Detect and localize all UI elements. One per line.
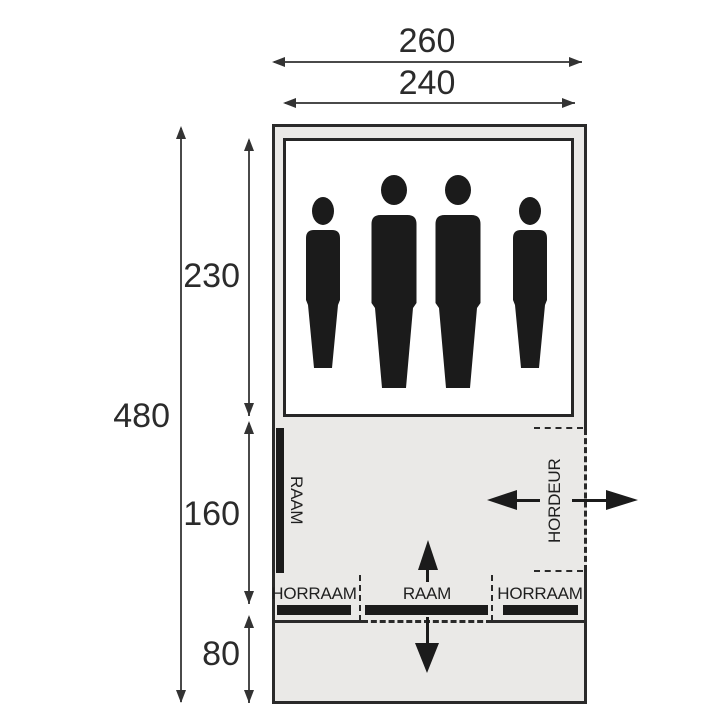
dimension-outer-width-value: 260 [352,21,502,61]
person-icon [371,175,417,388]
tent-floorplan-diagram: 260 240 480 230 160 80 RAAM HORDEUR [0,0,720,720]
canopy-divider-left [272,620,362,623]
tent-wall-top [272,124,587,127]
front-section-separator-left [359,575,361,621]
arrowhead-down-icon [244,591,254,604]
front-center-window-bar [365,605,488,615]
tent-wall-bottom [272,701,587,704]
door-arrow-inward-shaft [515,499,540,502]
arrowhead-right-icon [562,98,575,108]
arrowhead-down-icon [244,690,254,703]
front-door-arrow-inward-shaft [426,569,429,582]
door-arrow-inward-icon [487,490,517,510]
side-window-bar [276,428,284,573]
tent-wall-left [272,124,275,704]
front-right-window-label: HORRAAM [496,584,584,604]
front-door-arrow-outward-icon [415,643,439,673]
front-center-window-label: RAAM [383,584,471,604]
arrowhead-up-icon [176,126,186,139]
dimension-inner-width-value: 240 [352,63,502,103]
dimension-line-total-length [180,128,182,702]
arrowhead-left-icon [272,57,285,67]
arrowhead-down-icon [176,690,186,703]
tent-wall-right-upper [584,124,587,429]
dimension-canopy-length-value: 80 [168,634,240,674]
arrowhead-up-icon [244,615,254,628]
front-door-arrow-inward-icon [418,540,438,570]
dimension-line-living-length [248,423,250,604]
arrowhead-left-icon [283,98,296,108]
front-section-separator-right [491,575,493,621]
arrowhead-right-icon [569,57,582,67]
front-right-window-bar [503,605,578,615]
dimension-line-sleeping-length [248,140,250,416]
person-icon [512,197,548,368]
front-door-arrow-outward-shaft [426,617,429,644]
door-arrow-outward-icon [606,490,638,510]
front-left-window-label: HORRAAM [270,584,358,604]
tent-wall-right-lower [584,571,587,704]
front-left-window-bar [277,605,351,615]
screen-door-label: HORDEUR [543,428,567,573]
person-icon [305,197,341,368]
dimension-total-length-value: 480 [100,396,170,436]
dimension-living-length-value: 160 [168,494,240,534]
door-arrow-outward-shaft [572,499,607,502]
arrowhead-up-icon [244,138,254,151]
person-icon [435,175,481,388]
canopy-divider-right [492,620,587,623]
dimension-sleeping-length-value: 230 [168,256,240,296]
side-window-label: RAAM [284,428,308,573]
arrowhead-down-icon [244,403,254,416]
arrowhead-up-icon [244,421,254,434]
dimension-line-inner-width [285,102,575,104]
